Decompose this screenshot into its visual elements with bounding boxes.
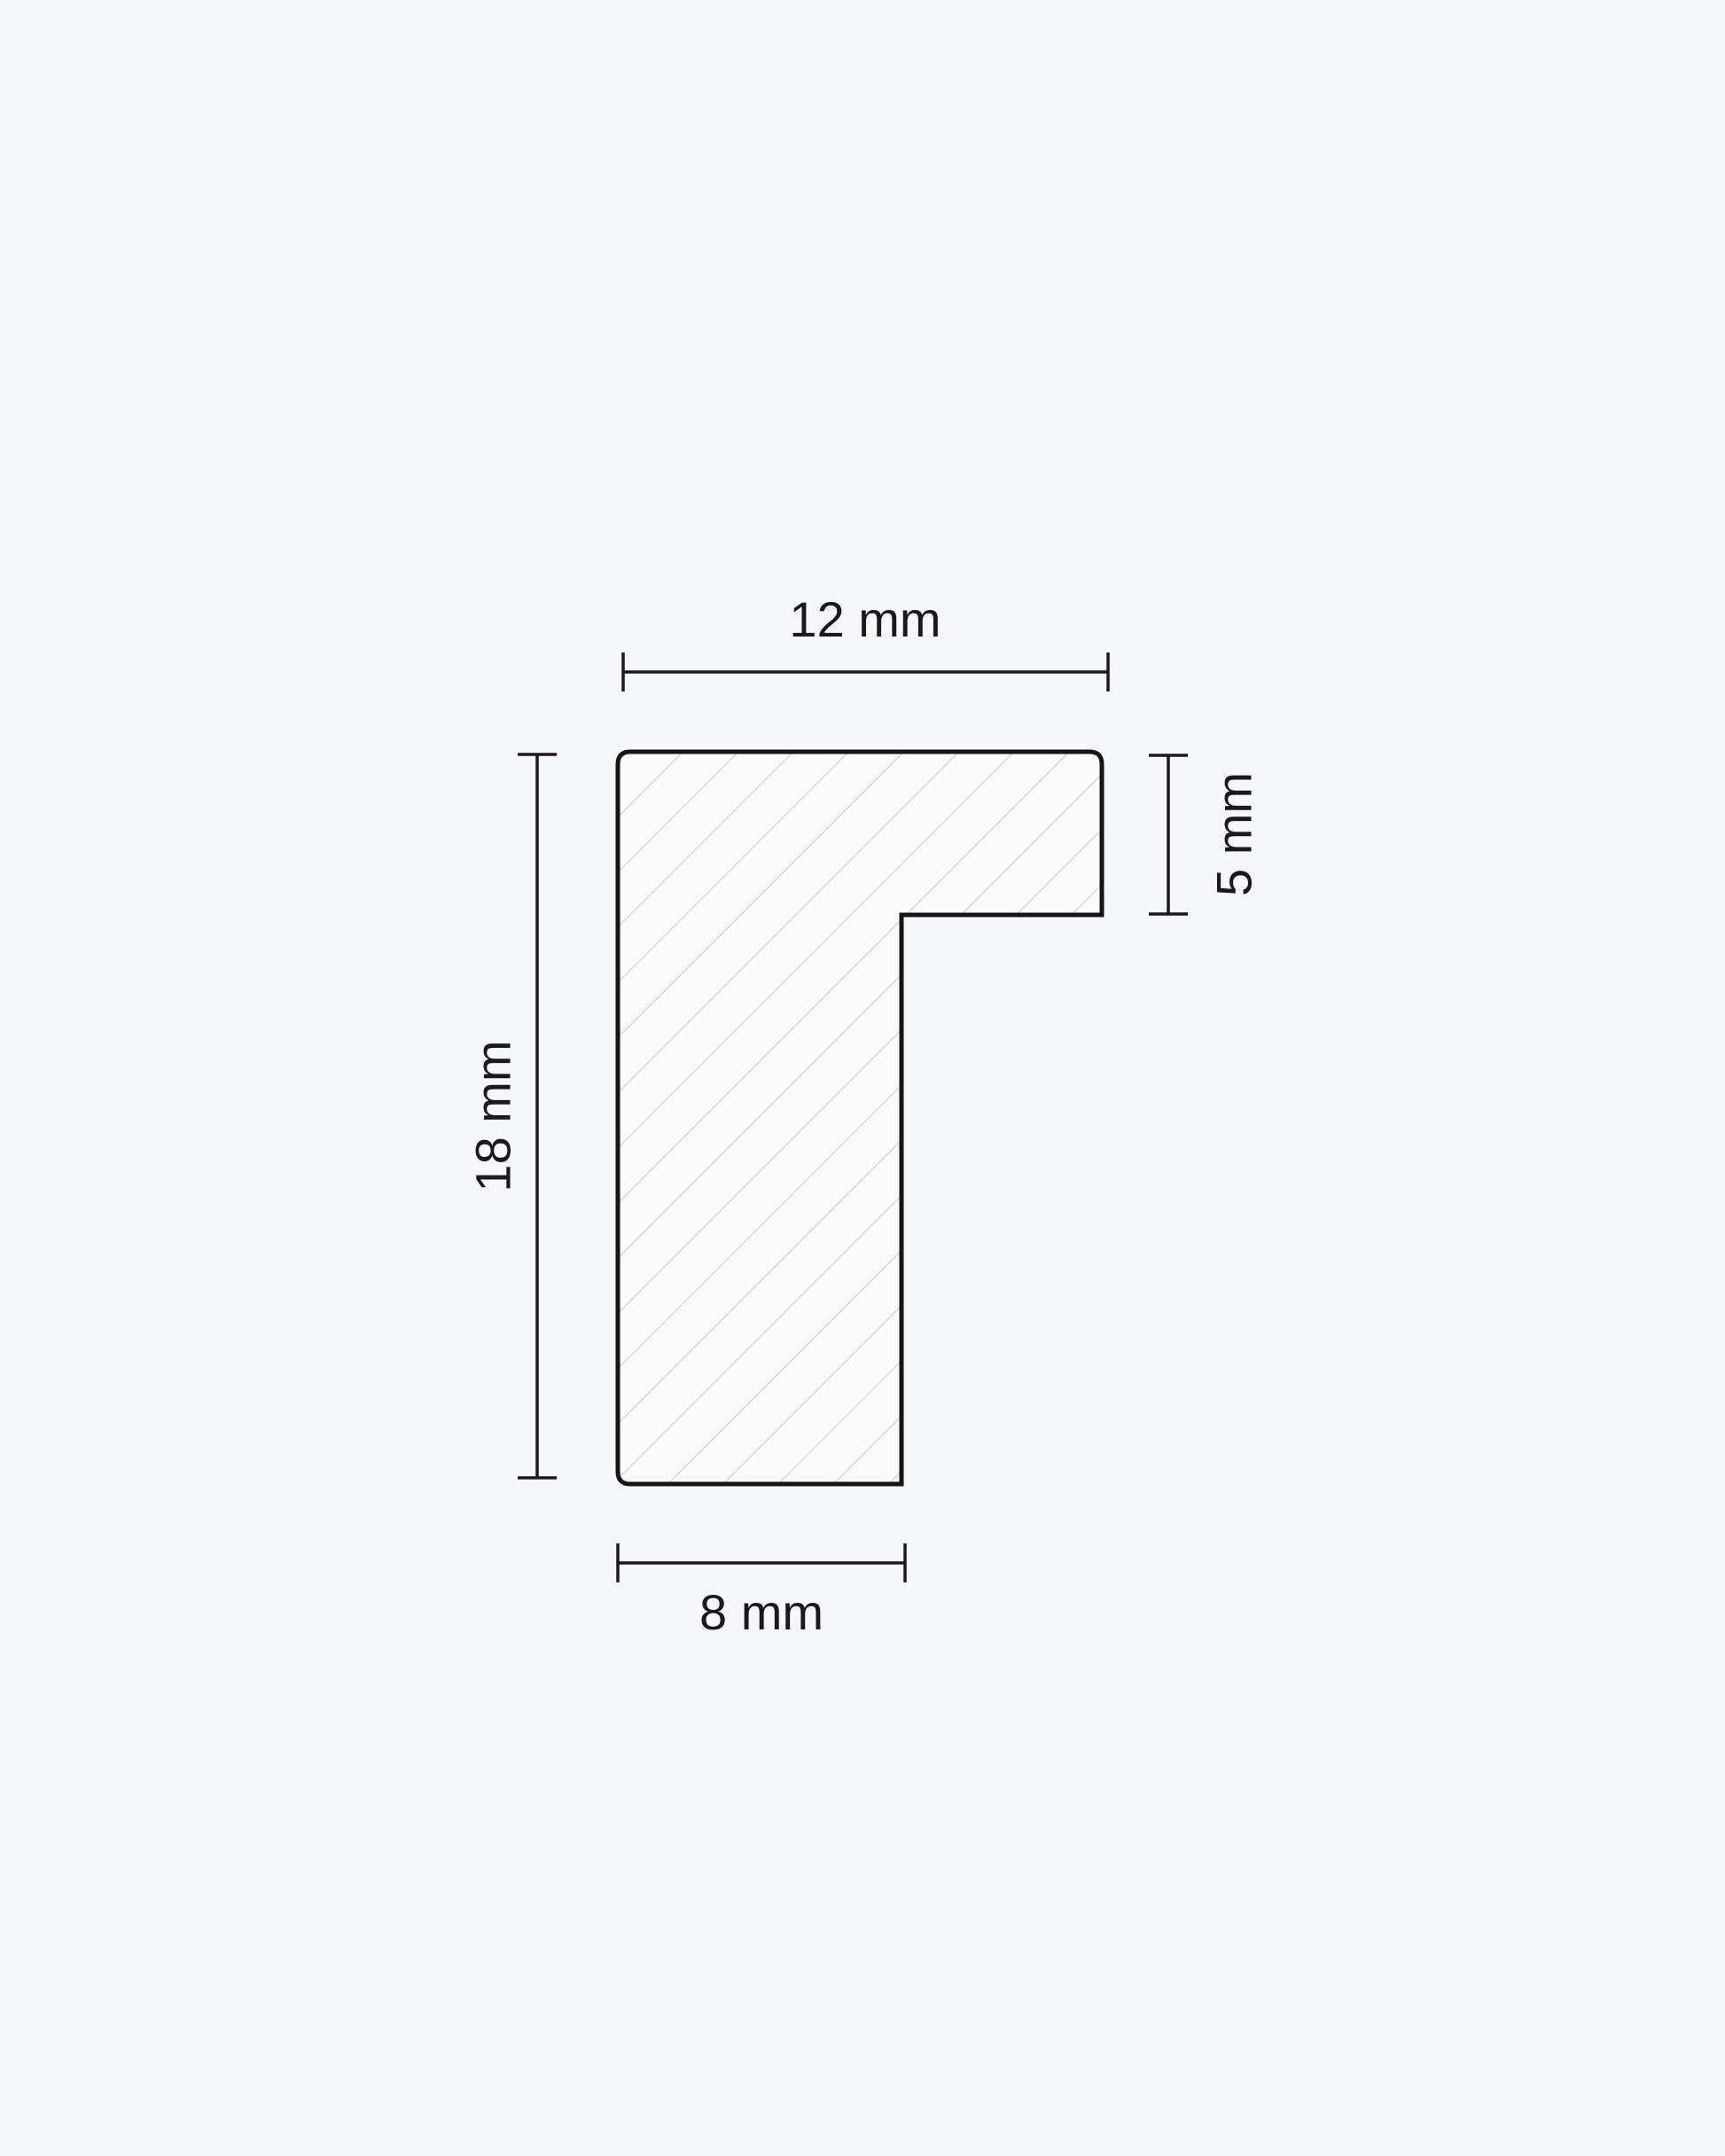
dimension-top-label: 12 mm bbox=[789, 591, 941, 647]
dimension-left-label: 18 mm bbox=[465, 1040, 521, 1191]
dimension-right-label: 5 mm bbox=[1206, 772, 1262, 896]
profile-shape bbox=[618, 752, 1102, 1484]
profile-diagram-canvas: 12 mm 18 mm 5 mm 8 mm bbox=[0, 0, 1725, 2156]
profile-drawing-svg: 12 mm 18 mm 5 mm 8 mm bbox=[0, 0, 1725, 2156]
dimension-top-width bbox=[623, 652, 1108, 691]
dimension-left-height bbox=[518, 754, 557, 1478]
dimension-bottom-width bbox=[618, 1543, 905, 1582]
dimension-bottom-label: 8 mm bbox=[699, 1584, 823, 1640]
dimension-right-rebate bbox=[1149, 755, 1188, 914]
